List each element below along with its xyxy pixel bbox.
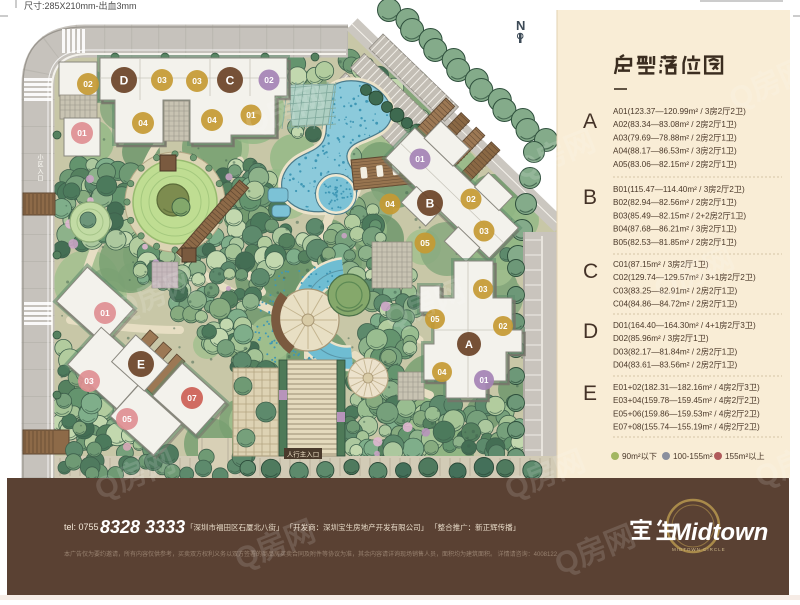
- svg-text:C: C: [583, 260, 598, 283]
- svg-text:人行主入口: 人行主入口: [287, 450, 320, 459]
- svg-text:03: 03: [479, 285, 488, 294]
- svg-text:N: N: [516, 18, 525, 33]
- svg-text:05: 05: [122, 414, 132, 424]
- svg-text:01: 01: [100, 308, 110, 318]
- svg-text:E05+06(159.86—159.53m² / 4房2厅2: E05+06(159.86—159.53m² / 4房2厅2卫): [613, 408, 760, 418]
- svg-text:05: 05: [420, 238, 430, 248]
- svg-text:90m²以下: 90m²以下: [622, 452, 657, 461]
- svg-text:B: B: [583, 186, 597, 209]
- svg-text:02: 02: [83, 79, 93, 89]
- svg-text:MIDTOWN CIRCLE: MIDTOWN CIRCLE: [672, 547, 726, 552]
- svg-text:E: E: [583, 382, 597, 405]
- svg-text:A05(83.06—82.15m² / 2房2厅1卫): A05(83.06—82.15m² / 2房2厅1卫): [613, 159, 737, 169]
- svg-text:D02(85.96m² / 3房2厅1卫): D02(85.96m² / 3房2厅1卫): [613, 333, 709, 343]
- svg-text:04: 04: [438, 368, 447, 377]
- svg-text:B04(87.68—86.21m² / 3房2厅1卫): B04(87.68—86.21m² / 3房2厅1卫): [613, 224, 737, 234]
- svg-text:04: 04: [207, 115, 217, 125]
- svg-text:03: 03: [84, 376, 94, 386]
- svg-text:D: D: [120, 73, 129, 87]
- svg-text:A04(88.17—86.53m² / 3房2厅1卫): A04(88.17—86.53m² / 3房2厅1卫): [613, 146, 737, 156]
- svg-text:B: B: [426, 196, 435, 210]
- svg-text:A03(79.69—78.88m² / 2房2厅1卫): A03(79.69—78.88m² / 2房2厅1卫): [613, 132, 737, 142]
- svg-text:02: 02: [499, 322, 508, 331]
- svg-text:8328 3333: 8328 3333: [100, 517, 185, 537]
- svg-text:02: 02: [264, 75, 274, 85]
- svg-text:E03+04(159.78—159.45m² / 4房2厅2: E03+04(159.78—159.45m² / 4房2厅2卫): [613, 395, 760, 405]
- svg-text:04: 04: [385, 199, 395, 209]
- svg-text:01: 01: [415, 154, 425, 164]
- svg-text:04: 04: [138, 118, 148, 128]
- svg-text:02: 02: [466, 194, 476, 204]
- svg-text:03: 03: [192, 76, 202, 86]
- svg-text:tel: 0755: tel: 0755: [64, 522, 99, 532]
- svg-text:A: A: [465, 339, 473, 351]
- svg-text:A02(83.34—83.08m² / 2房2厅1卫): A02(83.34—83.08m² / 2房2厅1卫): [613, 119, 737, 129]
- svg-text:E01+02(182.31—182.16m² / 4房2厅3: E01+02(182.31—182.16m² / 4房2厅3卫): [613, 382, 760, 392]
- svg-text:01: 01: [480, 376, 489, 385]
- svg-text:01: 01: [77, 128, 87, 138]
- svg-text:C: C: [226, 73, 235, 87]
- svg-text:03: 03: [479, 226, 489, 236]
- svg-text:03: 03: [157, 75, 167, 85]
- svg-text:E: E: [137, 357, 145, 371]
- svg-text:B01(115.47—114.40m² / 3房2厅2卫): B01(115.47—114.40m² / 3房2厅2卫): [613, 184, 745, 194]
- svg-text:D01(164.40—164.30m² / 4+1房2厅3卫: D01(164.40—164.30m² / 4+1房2厅3卫): [613, 320, 756, 330]
- svg-text:B03(85.49—82.15m² / 2+2房2厅1卫): B03(85.49—82.15m² / 2+2房2厅1卫): [613, 210, 746, 220]
- svg-text:尺寸:285X210mm-出血3mm: 尺寸:285X210mm-出血3mm: [24, 0, 137, 11]
- svg-text:「深圳市福田区石厦北八街」 「开发商：深圳宝生房地产开发有限: 「深圳市福田区石厦北八街」 「开发商：深圳宝生房地产开发有限公司」 「整合推广：…: [186, 522, 520, 532]
- svg-text:E07+08(155.74—155.19m² / 4房2厅2: E07+08(155.74—155.19m² / 4房2厅2卫): [613, 422, 760, 432]
- svg-text:B02(82.94—82.56m² / 2房2厅1卫): B02(82.94—82.56m² / 2房2厅1卫): [613, 197, 737, 207]
- svg-text:07: 07: [187, 393, 197, 403]
- svg-text:本广告仅为要约邀请，所有内容仅供参考，买卖双方权利义务以双方: 本广告仅为要约邀请，所有内容仅供参考，买卖双方权利义务以双方签署的商品房买卖合同…: [64, 550, 558, 558]
- svg-text:D: D: [583, 320, 598, 343]
- svg-text:D04(83.61—83.56m² / 2房2厅1卫): D04(83.61—83.56m² / 2房2厅1卫): [613, 360, 738, 370]
- svg-text:D03(82.17—81.84m² / 2房2厅1卫): D03(82.17—81.84m² / 2房2厅1卫): [613, 346, 738, 356]
- svg-text:100-155m²: 100-155m²: [673, 452, 713, 461]
- svg-text:A01(123.37—120.99m² / 3房2厅2卫): A01(123.37—120.99m² / 3房2厅2卫): [613, 106, 746, 116]
- svg-text:Midtown: Midtown: [671, 519, 768, 546]
- svg-text:小区入口: 小区入口: [36, 153, 43, 182]
